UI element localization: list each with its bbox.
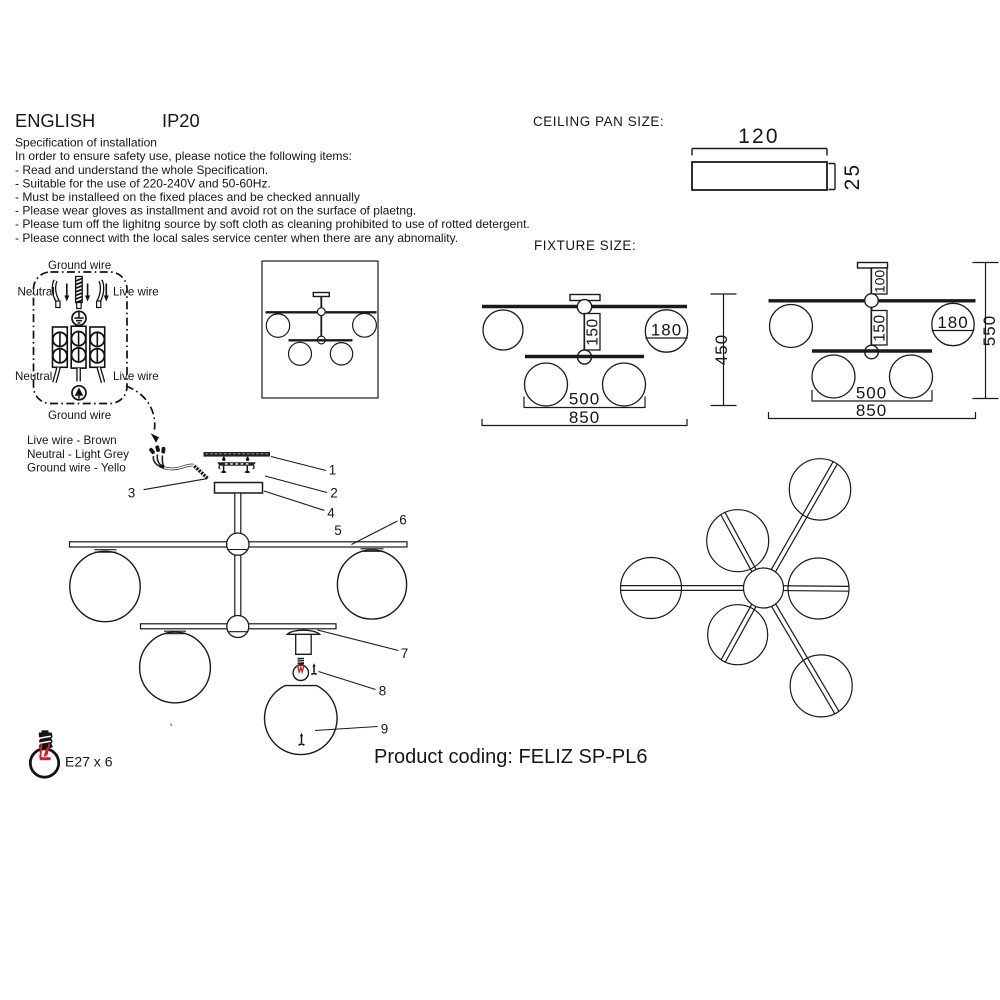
svg-text:In order to ensure safety use,: In order to ensure safety use, please no… [15,149,352,163]
svg-text:- Must be installeed on the fi: - Must be installeed on the fixed places… [15,190,360,204]
svg-text:100: 100 [872,270,888,294]
svg-text:ENGLISH: ENGLISH [15,110,95,131]
svg-text:FIXTURE SIZE:: FIXTURE SIZE: [534,238,636,253]
svg-text:Specification of installation: Specification of installation [15,136,157,150]
svg-text:Neutral: Neutral [18,286,55,299]
svg-text:- Suitable for the use of 220-: - Suitable for the use of 220-240V and 5… [15,176,271,190]
svg-text:Live wire: Live wire [113,370,159,383]
svg-text:25: 25 [841,163,864,191]
svg-text:CEILING PAN SIZE:: CEILING PAN SIZE: [533,114,664,129]
svg-text:Ground wire: Ground wire [48,409,111,422]
svg-text:5: 5 [334,523,342,538]
svg-text:- Please tum off the lighitng: - Please tum off the lighitng source by … [15,217,530,231]
svg-text:180: 180 [651,321,682,340]
svg-text:- Please wear gloves as instal: - Please wear gloves as installment and … [15,204,416,218]
svg-text:8: 8 [379,684,387,699]
svg-text:150: 150 [585,318,602,345]
svg-text:550: 550 [980,315,999,346]
svg-text:Ground wire - Yello: Ground wire - Yello [27,462,126,475]
svg-text:4: 4 [327,506,335,521]
svg-text:850: 850 [569,408,600,427]
svg-text:9: 9 [381,722,389,737]
svg-text:- Please connect with the loca: - Please connect with the local sales se… [15,231,458,245]
svg-text:180: 180 [937,313,968,332]
svg-text:Live wire - Brown: Live wire - Brown [27,434,117,447]
svg-text:150: 150 [872,314,889,341]
svg-text:Neutral - Light Grey: Neutral - Light Grey [27,448,129,461]
svg-text:Ground wire: Ground wire [48,259,111,272]
svg-text:Live wire: Live wire [113,286,159,299]
svg-text:120: 120 [738,125,780,148]
svg-text:Product coding: FELIZ SP-PL6: Product coding: FELIZ SP-PL6 [374,746,647,768]
svg-text:E27 x 6: E27 x 6 [65,754,113,770]
svg-text:3: 3 [128,486,136,501]
svg-text:450: 450 [712,334,731,365]
svg-text:Neutral: Neutral [15,370,52,383]
svg-text:1: 1 [329,463,337,478]
svg-text:6: 6 [399,513,407,528]
svg-text:IP20: IP20 [162,110,200,131]
svg-text:7: 7 [401,646,409,661]
svg-text:500: 500 [856,384,887,403]
svg-text:850: 850 [856,401,887,420]
svg-text:2: 2 [330,486,338,501]
svg-text:- Read and understand the whol: - Read and understand the whole Specific… [15,163,268,177]
svg-text:500: 500 [569,390,600,409]
